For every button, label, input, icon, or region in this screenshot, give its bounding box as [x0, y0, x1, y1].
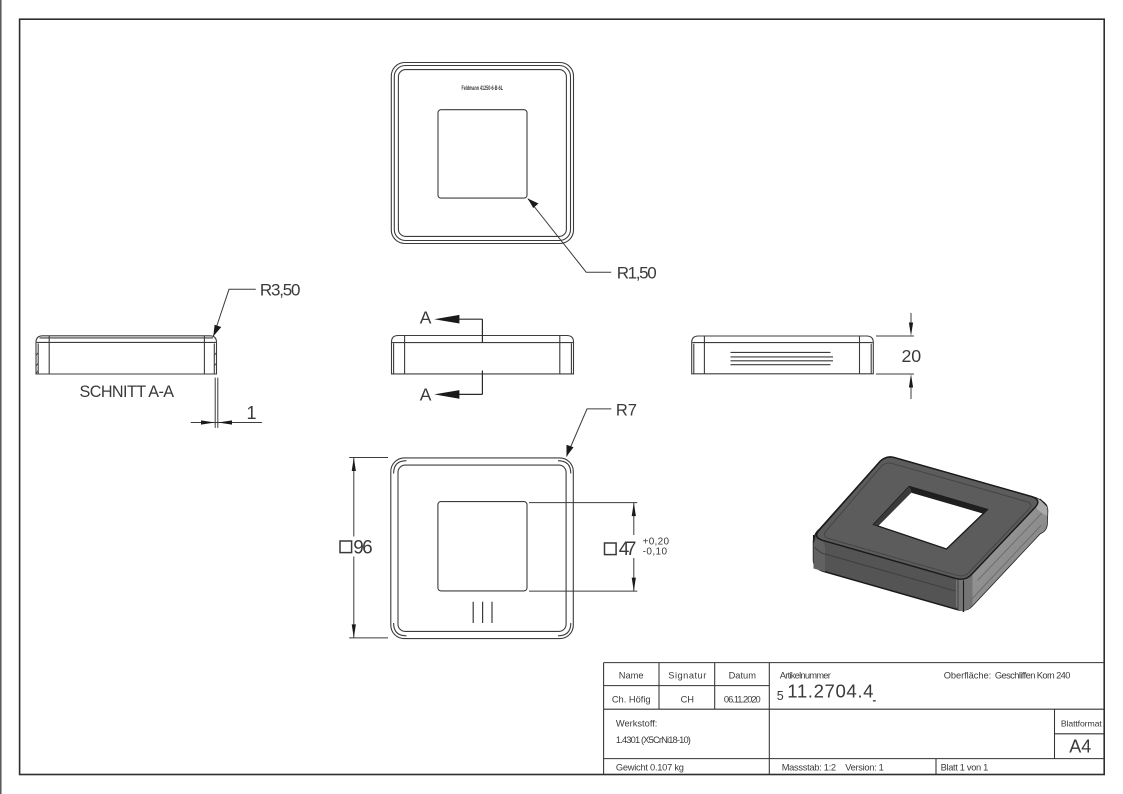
svg-text:Blatt 1 von 1: Blatt 1 von 1	[941, 763, 989, 773]
svg-text:Artikelnummer: Artikelnummer	[780, 671, 831, 681]
svg-text:Massstab: 1:2: Massstab: 1:2	[782, 763, 836, 773]
svg-text:96: 96	[353, 537, 372, 558]
svg-text:A: A	[420, 384, 432, 404]
svg-text:47: 47	[619, 539, 637, 560]
svg-text:Blattformat: Blattformat	[1061, 718, 1102, 728]
svg-text:Datum: Datum	[729, 671, 757, 681]
svg-text:Name: Name	[619, 671, 644, 681]
svg-text:A4: A4	[1069, 737, 1091, 757]
svg-text:Gewicht 0.107 kg: Gewicht 0.107 kg	[616, 763, 684, 773]
svg-text:5: 5	[777, 689, 784, 703]
svg-text:Version: 1: Version: 1	[845, 763, 884, 773]
svg-text:Feldmann 41250-6-B-6L: Feldmann 41250-6-B-6L	[462, 85, 504, 92]
svg-text:1: 1	[247, 403, 257, 423]
svg-text:Ch. Höfig: Ch. Höfig	[612, 695, 651, 705]
svg-text:Signatur: Signatur	[668, 671, 706, 681]
svg-text:-0,10: -0,10	[643, 547, 668, 558]
svg-text:CH: CH	[681, 695, 694, 705]
svg-text:06.11.2020: 06.11.2020	[724, 695, 761, 705]
svg-text:1.4301 (X5CrNi18-10): 1.4301 (X5CrNi18-10)	[616, 735, 691, 745]
svg-text:SCHNITT A-A: SCHNITT A-A	[80, 383, 175, 401]
svg-text:Oberfläche:: Oberfläche:	[944, 671, 992, 681]
svg-text:R1,50: R1,50	[617, 264, 657, 283]
svg-text:R3,50: R3,50	[260, 280, 301, 299]
svg-text:A: A	[420, 307, 432, 327]
svg-text:20: 20	[902, 346, 922, 366]
svg-text:11.2704.4: 11.2704.4	[787, 681, 874, 702]
svg-text:Geschliffen Korn 240: Geschliffen Korn 240	[995, 671, 1071, 681]
svg-text:Werkstoff:: Werkstoff:	[616, 719, 658, 729]
svg-text:R7: R7	[616, 401, 637, 419]
svg-text:-: -	[873, 695, 877, 707]
